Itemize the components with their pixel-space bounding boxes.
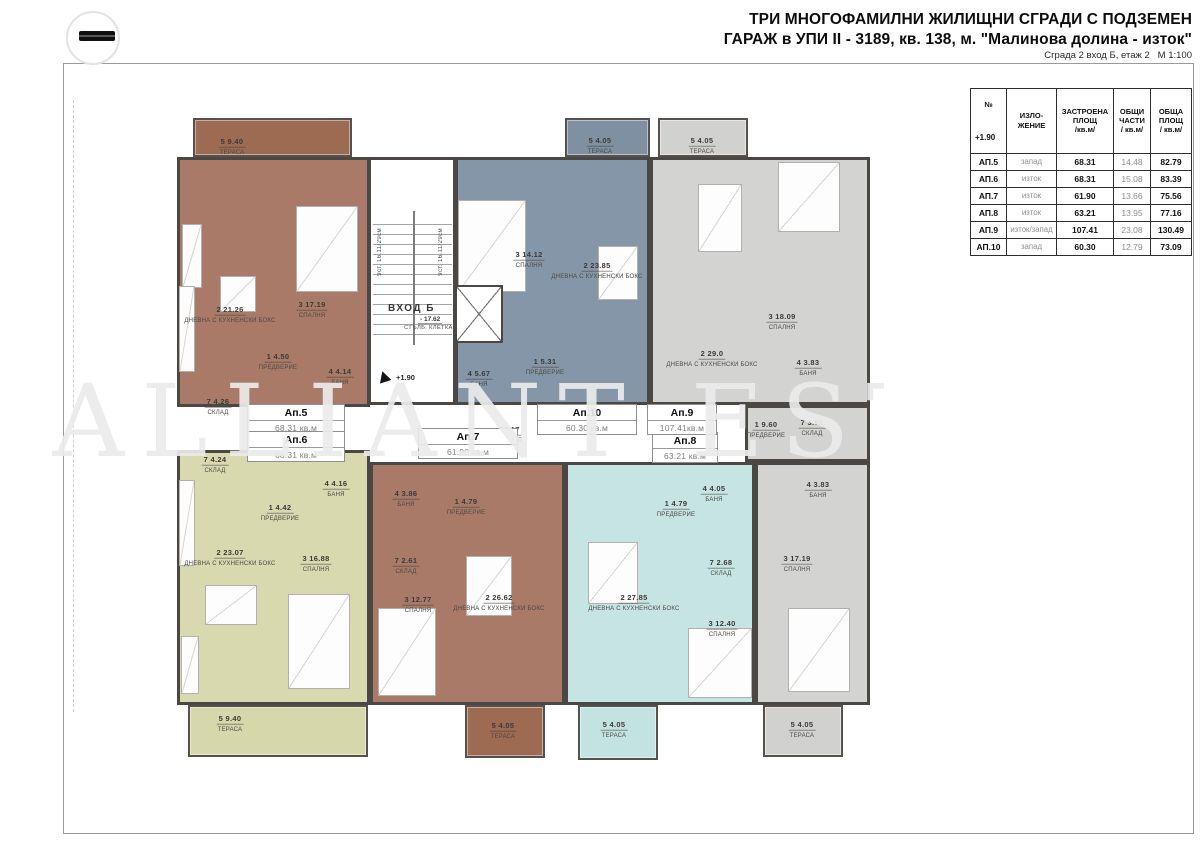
cell-common-parts: 13.66: [1114, 187, 1151, 204]
room-area-value: 2 29.0: [699, 349, 726, 360]
room-area-value: 2 27.85: [618, 593, 649, 604]
room-area-value: 1 4.42: [267, 503, 294, 514]
room-label-ap8: 3 12.40СПАЛНЯ: [706, 613, 737, 638]
room-label-ap8: 7 2.68СКЛАД: [708, 552, 735, 577]
table-row: АП.6изток68.3115.0883.39: [971, 170, 1192, 187]
stairwell-name-label: СТЪЛБ. КЛЕТКА: [404, 325, 453, 331]
apartment-area-value: 107.41кв.м: [648, 421, 716, 434]
furniture-block: [778, 162, 840, 232]
table-header-built-up: ЗАСТРОЕНА ПЛОЩ /кв.м/: [1057, 89, 1114, 154]
furniture-block: [181, 636, 199, 694]
cell-total-area: 130.49: [1151, 221, 1192, 238]
table-row: АП.9изток/запад107.4123.08130.49: [971, 221, 1192, 238]
room-name: ДНЕВНА С КУХНЕНСКИ БОКС: [184, 317, 275, 323]
room-name: СПАЛНЯ: [513, 262, 544, 268]
room-name: ТЕРАСА: [219, 149, 246, 155]
room-label-ap9: 3 18.09СПАЛНЯ: [766, 306, 797, 331]
room-area-value: 5 9.40: [219, 137, 246, 148]
apartment-area-table: № +1.90 ИЗЛО- ЖЕНИЕ ЗАСТРОЕНА ПЛОЩ /кв.м…: [970, 88, 1192, 256]
room-area-value: 3 14.12: [513, 250, 544, 261]
cell-common-parts: 13.95: [1114, 204, 1151, 221]
room-label-ap9: 3 17.19СПАЛНЯ: [781, 548, 812, 573]
room-label-ap6: 5 9.40ТЕРАСА: [217, 708, 244, 733]
room-area-value: 7 2.61: [393, 556, 420, 567]
cell-common-parts: 14.48: [1114, 153, 1151, 170]
room-label-ap10: 2 23.85ДНЕВНА С КУХНЕНСКИ БОКС: [551, 255, 642, 280]
room-label-ap10: 4 5.67БАНЯ: [466, 363, 493, 388]
cell-exposure: запад: [1007, 238, 1057, 255]
room-name: БАНЯ: [323, 491, 350, 497]
room-label-ap5: 4 4.14БАНЯ: [327, 361, 354, 386]
room-label-ap6: 7 4.24СКЛАД: [202, 449, 229, 474]
room-name: ДНЕВНА С КУХНЕНСКИ БОКС: [184, 560, 275, 566]
room-label-ap9: 4 3.83БАНЯ: [805, 474, 832, 499]
terrace-ap5: [193, 118, 352, 157]
cell-apartment-no: АП.10: [971, 238, 1007, 255]
apartment-area-value: 60.30 кв.м: [538, 421, 636, 434]
room-name: ТЕРАСА: [587, 148, 614, 154]
apartment-name: Ап.5: [248, 405, 344, 421]
room-name: ДНЕВНА С КУХНЕНСКИ БОКС: [588, 605, 679, 611]
header-no-symbol: №: [972, 100, 1005, 109]
room-area-value: 4 3.83: [795, 358, 822, 369]
room-area-value: 7 3.62: [799, 418, 826, 429]
apartment-area-value: 68.31 кв.м: [248, 448, 344, 461]
room-area-value: 4 4.05: [701, 484, 728, 495]
cell-apartment-no: АП.5: [971, 153, 1007, 170]
cell-built-up-area: 60.30: [1057, 238, 1114, 255]
room-label-ap8: 4 4.05БАНЯ: [701, 478, 728, 503]
room-area-value: 2 21.26: [214, 305, 245, 316]
room-name: ПРЕДВЕРИЕ: [747, 432, 786, 438]
room-name: БАНЯ: [466, 381, 493, 387]
room-area-value: 4 5.67: [466, 369, 493, 380]
cell-apartment-no: АП.7: [971, 187, 1007, 204]
room-label-ap10: 1 5.31ПРЕДВЕРИЕ: [526, 351, 565, 376]
room-area-value: 1 9.60: [753, 420, 780, 431]
apartment-name: Ап.7: [419, 429, 517, 445]
apartment-area-value: 63.21 кв.м: [653, 449, 717, 462]
furniture-block: [182, 224, 202, 288]
apartment-label-ap9: Ап.9107.41кв.м: [647, 404, 717, 435]
room-label-ap7: 3 12.77СПАЛНЯ: [402, 589, 433, 614]
room-name: СКЛАД: [799, 430, 826, 436]
room-area-value: 4 4.16: [323, 479, 350, 490]
room-area-value: 3 12.77: [402, 595, 433, 606]
room-name: СКЛАД: [708, 570, 735, 576]
table-row: АП.8изток63.2113.9577.16: [971, 204, 1192, 221]
cell-total-area: 82.79: [1151, 153, 1192, 170]
room-label-ap5: 5 9.40ТЕРАСА: [219, 131, 246, 156]
furniture-block: [296, 206, 358, 292]
room-area-value: 3 12.40: [706, 619, 737, 630]
room-name: ДНЕВНА С КУХНЕНСКИ БОКС: [551, 273, 642, 279]
room-name: СПАЛНЯ: [706, 631, 737, 637]
apartment-name: Ап.9: [648, 405, 716, 421]
room-label-ap9: 7 3.62СКЛАД: [799, 412, 826, 437]
table-header-common: ОБЩИ ЧАСТИ / кв.м/: [1114, 89, 1151, 154]
stair-steps-label-left: 9ст. 16.11/29см: [377, 228, 383, 276]
room-name: БАНЯ: [701, 496, 728, 502]
table-row: АП.7изток61.9013.6675.56: [971, 187, 1192, 204]
room-name: ТЕРАСА: [601, 732, 628, 738]
apartment-label-ap8: Ап.863.21 кв.м: [652, 432, 718, 463]
room-label-ap9: 1 9.60ПРЕДВЕРИЕ: [747, 414, 786, 439]
room-area-value: 7 4.26: [205, 397, 232, 408]
stair-steps-label-right: 9ст. 16.11/29см: [438, 228, 444, 276]
room-label-ap10: 3 14.12СПАЛНЯ: [513, 244, 544, 269]
room-area-value: 4 3.83: [805, 480, 832, 491]
room-name: СКЛАД: [202, 467, 229, 473]
room-label-ap5: 3 17.19СПАЛНЯ: [296, 294, 327, 319]
cell-total-area: 83.39: [1151, 170, 1192, 187]
room-name: БАНЯ: [327, 379, 354, 385]
room-label-ap9: 5 4.05ТЕРАСА: [689, 130, 716, 155]
room-label-ap10: 5 4.05ТЕРАСА: [587, 130, 614, 155]
room-name: ПРЕДВЕРИЕ: [526, 369, 565, 375]
room-area-value: 1 4.79: [663, 499, 690, 510]
cell-exposure: изток: [1007, 187, 1057, 204]
room-area-value: 5 4.05: [587, 136, 614, 147]
cell-exposure: изток: [1007, 170, 1057, 187]
apartment-label-ap6: Ап.668.31 кв.м: [247, 431, 345, 462]
apartment-name: Ап.8: [653, 433, 717, 449]
room-name: СКЛАД: [393, 568, 420, 574]
room-name: ТЕРАСА: [217, 726, 244, 732]
cell-built-up-area: 68.31: [1057, 170, 1114, 187]
room-label-ap7: 5 4.05ТЕРАСА: [490, 715, 517, 740]
cell-common-parts: 15.08: [1114, 170, 1151, 187]
room-area-value: 3 18.09: [766, 312, 797, 323]
cell-apartment-no: АП.6: [971, 170, 1007, 187]
cell-exposure: изток: [1007, 204, 1057, 221]
room-name: ПРЕДВЕРИЕ: [261, 515, 300, 521]
room-label-ap9: 4 3.83БАНЯ: [795, 352, 822, 377]
room-label-ap9: 5 4.05ТЕРАСА: [789, 714, 816, 739]
cell-exposure: изток/запад: [1007, 221, 1057, 238]
cell-total-area: 75.56: [1151, 187, 1192, 204]
room-area-value: 3 17.19: [781, 554, 812, 565]
table-row: АП.10запад60.3012.7973.09: [971, 238, 1192, 255]
room-area-value: 7 2.68: [708, 558, 735, 569]
room-name: СПАЛНЯ: [781, 566, 812, 572]
room-area-value: 3 17.19: [296, 300, 327, 311]
room-label-ap5: 7 4.26СКЛАД: [205, 391, 232, 416]
room-label-ap7: 2 26.62ДНЕВНА С КУХНЕНСКИ БОКС: [453, 587, 544, 612]
room-area-value: 5 4.05: [689, 136, 716, 147]
room-label-ap7: 4 3.86БАНЯ: [393, 483, 420, 508]
room-name: БАНЯ: [805, 492, 832, 498]
room-name: СПАЛНЯ: [296, 312, 327, 318]
room-name: ПРЕДВЕРИЕ: [259, 364, 298, 370]
room-name: ТЕРАСА: [789, 732, 816, 738]
room-area-value: 5 9.40: [217, 714, 244, 725]
table-header-exposure: ИЗЛО- ЖЕНИЕ: [1007, 89, 1057, 154]
room-area-value: 1 5.31: [532, 357, 559, 368]
cell-built-up-area: 68.31: [1057, 153, 1114, 170]
cell-built-up-area: 63.21: [1057, 204, 1114, 221]
room-name: СПАЛНЯ: [300, 566, 331, 572]
apartment-label-ap7: Ап.761.90 кв.м: [418, 428, 518, 459]
furniture-block: [688, 628, 752, 698]
room-area-value: 4 3.86: [393, 489, 420, 500]
room-area-value: 5 4.05: [490, 721, 517, 732]
room-area-value: 1 4.79: [453, 497, 480, 508]
room-label-ap6: 1 4.42ПРЕДВЕРИЕ: [261, 497, 300, 522]
room-name: СПАЛНЯ: [766, 324, 797, 330]
room-name: ТЕРАСА: [689, 148, 716, 154]
room-label-ap6: 2 23.07ДНЕВНА С КУХНЕНСКИ БОКС: [184, 542, 275, 567]
furniture-block: [378, 608, 436, 696]
room-area-value: 2 26.62: [483, 593, 514, 604]
room-name: БАНЯ: [795, 370, 822, 376]
cell-built-up-area: 61.90: [1057, 187, 1114, 204]
room-label-ap6: 3 16.88СПАЛНЯ: [300, 548, 331, 573]
room-area-value: 1 4.50: [265, 352, 292, 363]
room-label-ap8: 1 4.79ПРЕДВЕРИЕ: [657, 493, 696, 518]
cell-built-up-area: 107.41: [1057, 221, 1114, 238]
room-label-ap8: 2 27.85ДНЕВНА С КУХНЕНСКИ БОКС: [588, 587, 679, 612]
room-label-ap9: 2 29.0ДНЕВНА С КУХНЕНСКИ БОКС: [666, 343, 757, 368]
cell-apartment-no: АП.9: [971, 221, 1007, 238]
cell-apartment-no: АП.8: [971, 204, 1007, 221]
table-header-total: ОБЩА ПЛОЩ / кв.м/: [1151, 89, 1192, 154]
room-label-ap6: 4 4.16БАНЯ: [323, 473, 350, 498]
room-label-ap8: 5 4.05ТЕРАСА: [601, 714, 628, 739]
apartment-label-ap10: Ап.1060.30 кв.м: [537, 404, 637, 435]
elevator-shaft: [455, 285, 503, 343]
room-name: БАНЯ: [393, 501, 420, 507]
room-area-value: 4 4.14: [327, 367, 354, 378]
cell-exposure: запад: [1007, 153, 1057, 170]
level-mark: +1.90: [396, 373, 415, 382]
table-header-no: № +1.90: [971, 89, 1007, 154]
cell-common-parts: 12.79: [1114, 238, 1151, 255]
plot-boundary-line: [73, 100, 74, 712]
room-name: ПРЕДВЕРИЕ: [657, 511, 696, 517]
table-header-row: № +1.90 ИЗЛО- ЖЕНИЕ ЗАСТРОЕНА ПЛОЩ /кв.м…: [971, 89, 1192, 154]
entrance-b-label: ВХОД Б: [388, 303, 435, 314]
room-label-ap5: 2 21.26ДНЕВНА С КУХНЕНСКИ БОКС: [184, 299, 275, 324]
room-area-value: 3 16.88: [300, 554, 331, 565]
room-area-value: 2 23.07: [214, 548, 245, 559]
room-label-ap7: 1 4.79ПРЕДВЕРИЕ: [447, 491, 486, 516]
room-name: СКЛАД: [205, 409, 232, 415]
furniture-block: [788, 608, 850, 692]
header-level-mark: +1.90: [972, 133, 1005, 143]
room-name: СПАЛНЯ: [402, 607, 433, 613]
room-name: ТЕРАСА: [490, 733, 517, 739]
room-name: ПРЕДВЕРИЕ: [447, 509, 486, 515]
cell-total-area: 77.16: [1151, 204, 1192, 221]
room-area-value: 5 4.05: [601, 720, 628, 731]
furniture-block: [698, 184, 742, 252]
room-area-value: 2 23.85: [581, 261, 612, 272]
room-area-value: 5 4.05: [789, 720, 816, 731]
cell-common-parts: 23.08: [1114, 221, 1151, 238]
apartment-area-value: 61.90 кв.м: [419, 445, 517, 458]
room-area-value: 7 4.24: [202, 455, 229, 466]
table-row: АП.5запад68.3114.4882.79: [971, 153, 1192, 170]
room-label-ap7: 7 2.61СКЛАД: [393, 550, 420, 575]
room-name: ДНЕВНА С КУХНЕНСКИ БОКС: [453, 605, 544, 611]
apartment-name: Ап.10: [538, 405, 636, 421]
stairwell-area-value: - 17.62: [418, 316, 442, 324]
room-name: ДНЕВНА С КУХНЕНСКИ БОКС: [666, 361, 757, 367]
cell-total-area: 73.09: [1151, 238, 1192, 255]
furniture-block: [288, 594, 350, 689]
terrace-ap6: [188, 705, 368, 757]
apartment-name: Ап.6: [248, 432, 344, 448]
room-label-ap5: 1 4.50ПРЕДВЕРИЕ: [259, 346, 298, 371]
furniture-block: [205, 585, 257, 625]
